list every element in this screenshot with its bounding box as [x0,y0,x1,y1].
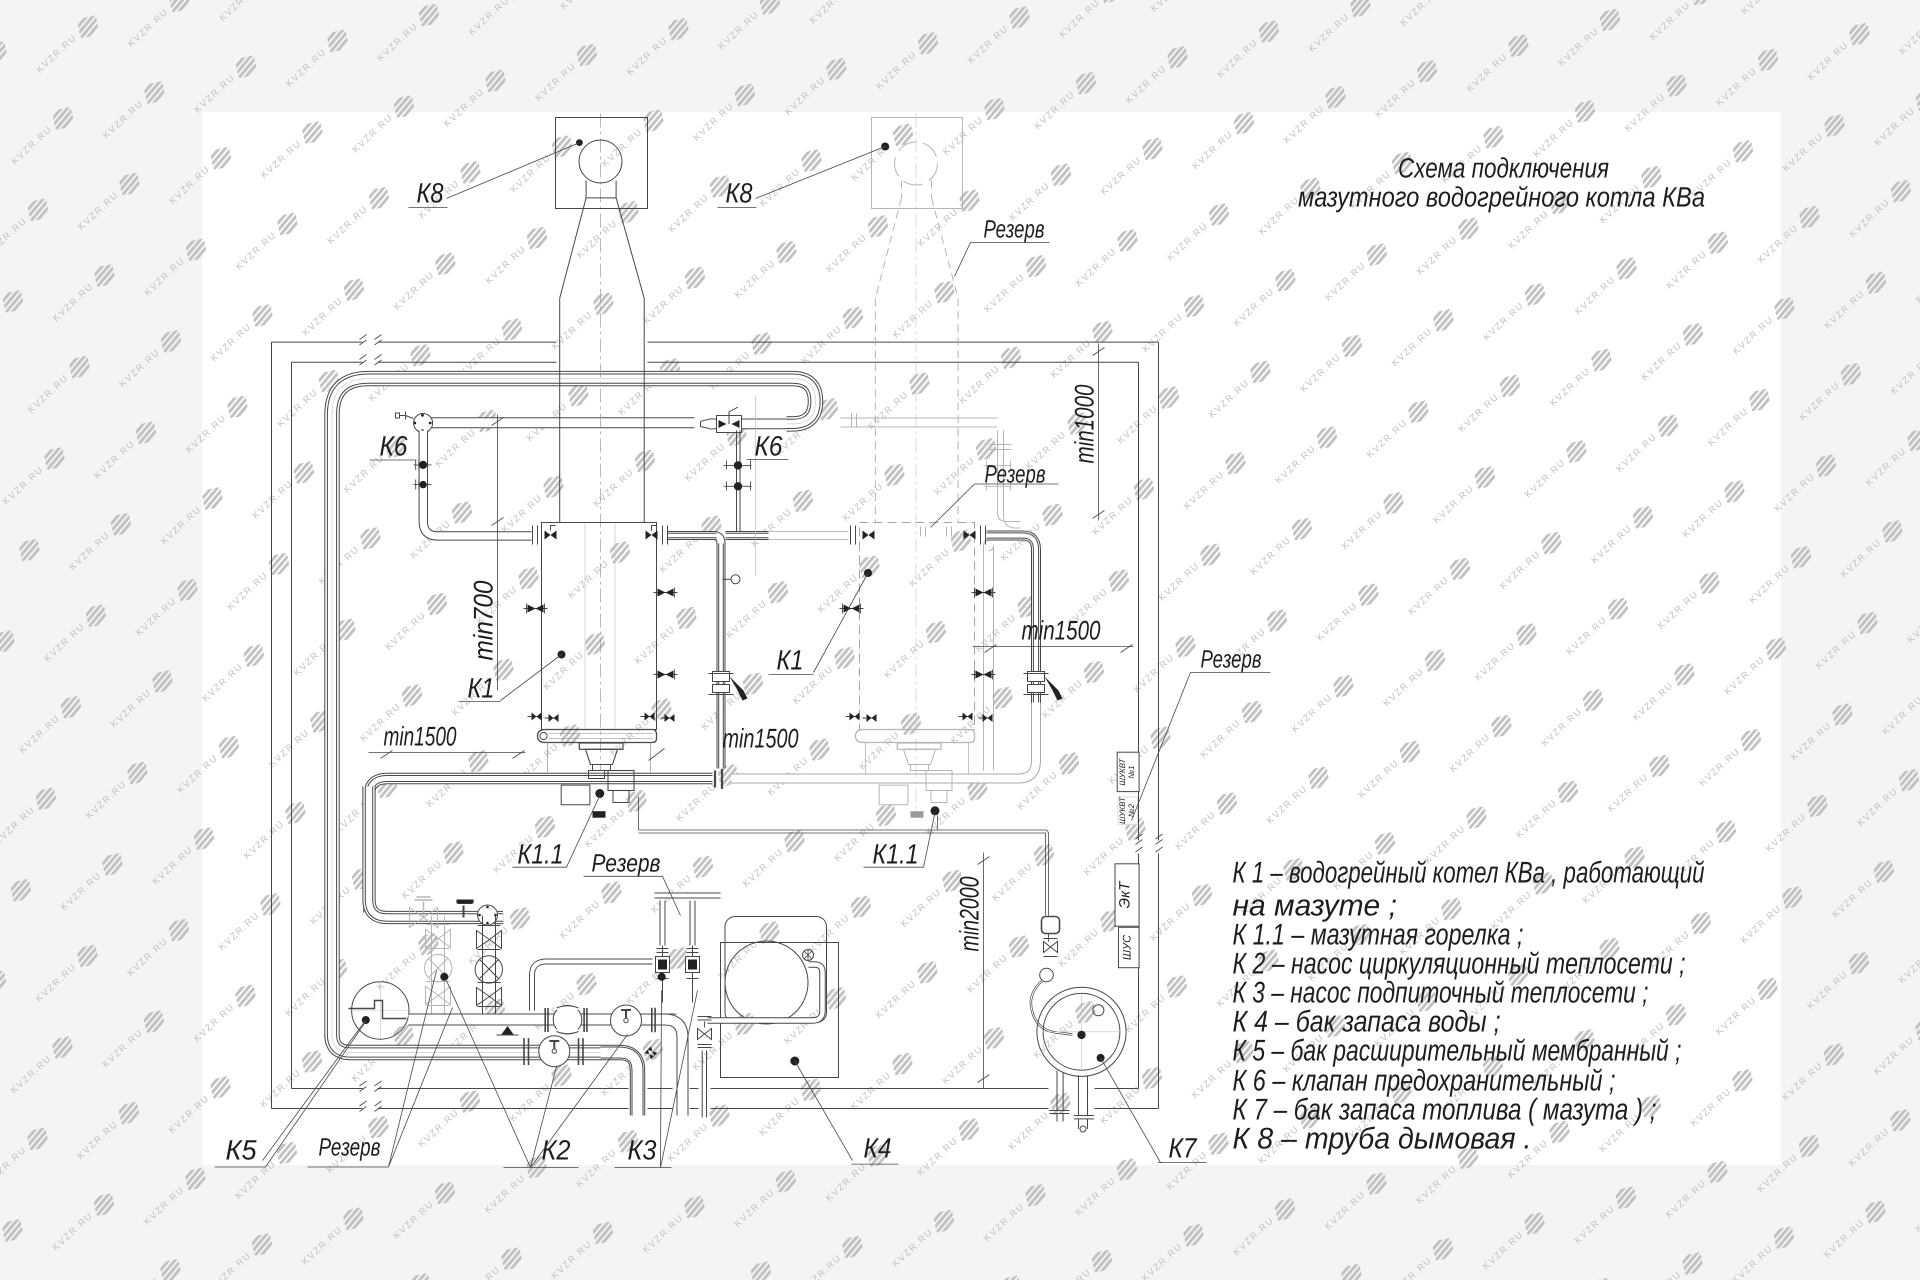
svg-text:К 5 – бак расширительный мемб: К 5 – бак расширительный мембранный ; [1233,1035,1682,1068]
svg-text:ШУКВТ: ШУКВТ [1118,796,1127,824]
svg-text:Резерв: Резерв [592,850,661,878]
svg-text:ЭкТ: ЭкТ [1117,880,1134,908]
svg-text:К8: К8 [417,178,444,209]
svg-text:Схема подключения: Схема подключения [1398,153,1609,184]
svg-text:К1.1: К1.1 [873,839,919,870]
svg-text:Резерв: Резерв [319,1134,381,1162]
svg-text:min1500: min1500 [723,724,799,754]
svg-text:К6: К6 [755,431,783,462]
svg-text:№1: №1 [1127,765,1136,778]
svg-text:min1500: min1500 [384,722,457,752]
svg-text:Резерв: Резерв [984,216,1045,244]
svg-text:К8: К8 [726,178,753,209]
svg-text:К2: К2 [542,1135,571,1166]
svg-text:К7: К7 [1169,1133,1198,1164]
svg-text:min1500: min1500 [1022,616,1101,646]
svg-text:К 8 – труба дымовая .: К 8 – труба дымовая . [1233,1123,1532,1156]
svg-text:ШУКВТ: ШУКВТ [1118,757,1127,785]
svg-text:№2: №2 [1127,803,1136,817]
svg-text:К1: К1 [468,673,495,704]
svg-text:К6: К6 [380,431,408,462]
svg-text:ШУС: ШУС [1122,935,1134,960]
svg-text:min700: min700 [469,581,499,661]
svg-text:К3: К3 [628,1135,657,1166]
svg-text:мазутного водогрейного котла К: мазутного водогрейного котла КВа [1298,182,1705,213]
svg-text:К 1 – водогрейный котел КВа ,: К 1 – водогрейный котел КВа , работающий [1233,857,1705,890]
svg-text:min1000: min1000 [1070,385,1100,464]
svg-text:К5: К5 [226,1135,257,1166]
svg-text:К1.1: К1.1 [518,839,564,870]
svg-text:К4: К4 [864,1133,892,1164]
svg-text:min2000: min2000 [955,877,985,952]
svg-text:Резерв: Резерв [1201,646,1262,674]
svg-text:К1: К1 [777,645,804,676]
